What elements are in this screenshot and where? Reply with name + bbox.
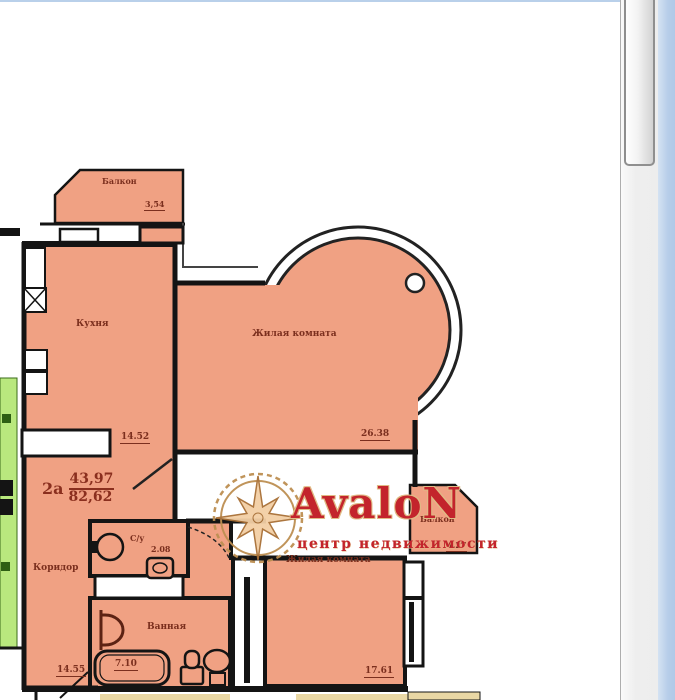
room-area-kitchen: 14.52: [120, 433, 150, 442]
room-label-bathroom: Ванная: [147, 623, 186, 632]
room-area-living-2: 17.61: [364, 667, 394, 676]
watermark-tagline: центр недвижимости: [297, 537, 499, 551]
toilet-icon-2: [181, 667, 203, 684]
room-label-kitchen: Кухня: [76, 320, 109, 329]
room-label-living-2: Жилая комната: [286, 556, 371, 565]
unit-total-area: 82,62: [69, 490, 115, 505]
toilet-icon: [147, 558, 173, 578]
room-area-wc: 2.08: [151, 545, 170, 553]
room-area-balcony-top: 3,54: [144, 200, 165, 208]
unit-living-area: 43,97: [69, 472, 115, 490]
scrollbar-thumb[interactable]: [624, 0, 655, 166]
room-label-living-1: Жилая комната: [252, 330, 337, 339]
window-right-edge: [658, 0, 675, 700]
column-circle: [406, 274, 424, 292]
unit-number: 2а: [42, 479, 64, 498]
room-area-bathroom: 7.10: [114, 660, 138, 669]
sink-icon-2: [204, 650, 230, 672]
room-label-corridor: Коридор: [33, 564, 78, 573]
unit-area-fraction: 43,97 82,62: [69, 472, 115, 504]
watermark-brand: AvaloN: [291, 483, 462, 525]
compass-logo: [214, 474, 302, 562]
window-top-border: [0, 0, 675, 2]
room-label-wc: С/у: [130, 534, 144, 542]
apartment-room-fills: [22, 227, 461, 690]
image-viewer: Балкон 3,54 Кухня 14.52 Жилая комната 26…: [0, 0, 675, 700]
room-label-balcony-top: Балкон: [102, 177, 137, 185]
room-area-living-1: 26.38: [360, 430, 390, 439]
floor-plan-drawing: [0, 0, 675, 700]
room-area-corridor: 14.55: [56, 666, 86, 675]
unit-area-summary: 2а 43,97 82,62: [42, 472, 114, 504]
